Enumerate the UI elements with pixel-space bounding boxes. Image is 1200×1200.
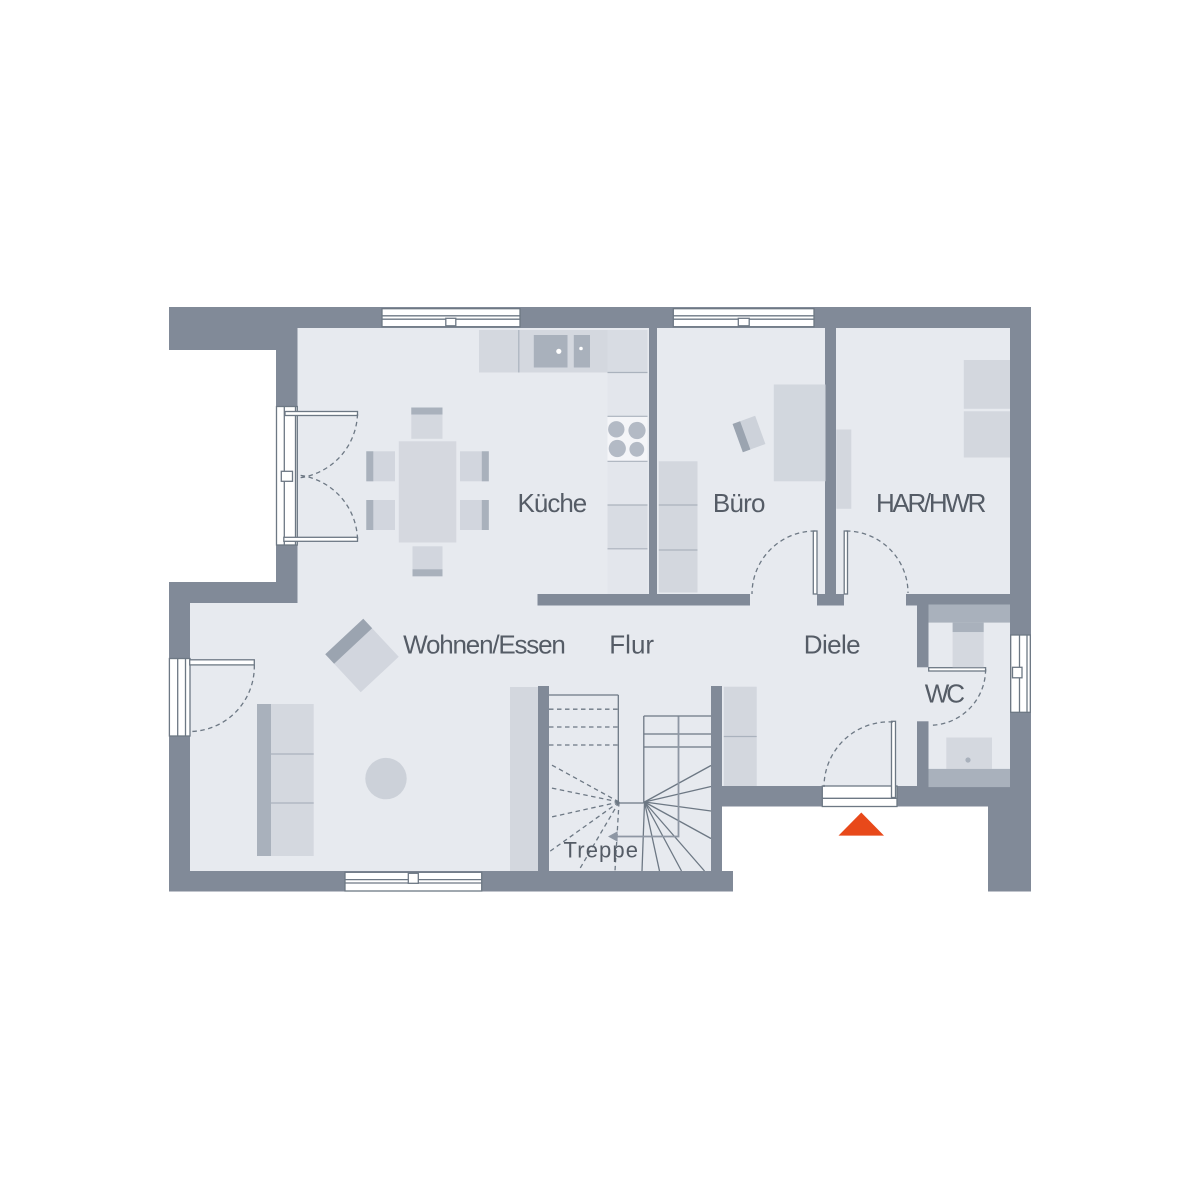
svg-text:Küche: Küche (518, 488, 587, 518)
svg-text:Wohnen/Essen: Wohnen/Essen (403, 630, 564, 660)
svg-text:Flur: Flur (609, 630, 654, 660)
svg-text:Diele: Diele (804, 630, 860, 660)
svg-text:Treppe: Treppe (564, 838, 640, 863)
svg-text:Büro: Büro (713, 488, 765, 518)
svg-text:HAR/HWR: HAR/HWR (876, 488, 986, 518)
svg-text:WC: WC (925, 679, 965, 709)
